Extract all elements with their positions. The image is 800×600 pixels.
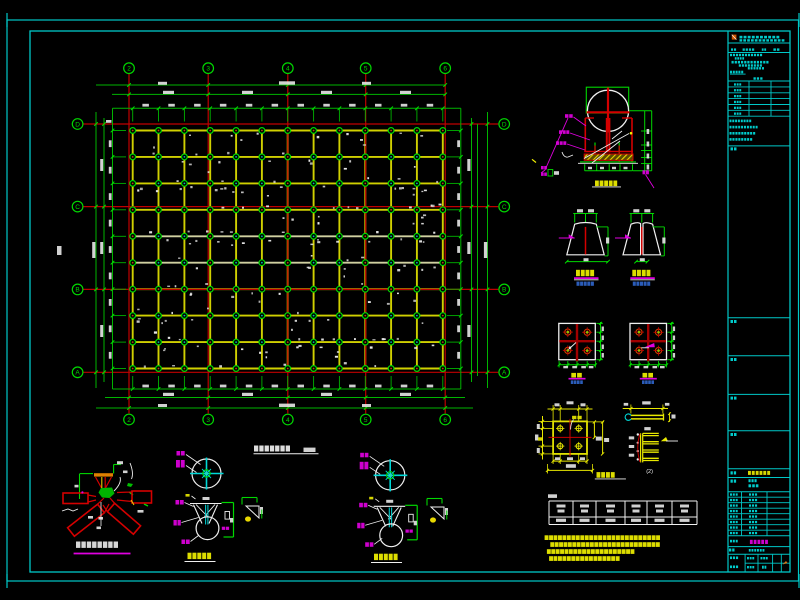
svg-text:C: C — [75, 204, 80, 211]
svg-text:A: A — [502, 370, 507, 377]
svg-text:3: 3 — [206, 417, 210, 424]
svg-text:D: D — [502, 121, 507, 128]
svg-text:B: B — [75, 287, 79, 294]
svg-text:5: 5 — [364, 66, 368, 73]
svg-text:3: 3 — [206, 66, 210, 73]
svg-text:B: B — [502, 287, 506, 294]
svg-text:5: 5 — [364, 417, 368, 424]
svg-text:(2): (2) — [646, 469, 653, 475]
svg-text:D: D — [75, 121, 80, 128]
svg-text:4: 4 — [286, 417, 290, 424]
svg-text:6: 6 — [443, 66, 447, 73]
svg-text:2: 2 — [127, 66, 131, 73]
svg-text:6: 6 — [443, 417, 447, 424]
svg-text:4: 4 — [286, 66, 290, 73]
svg-text:C: C — [502, 204, 507, 211]
svg-text:A: A — [75, 370, 80, 377]
svg-text:2: 2 — [127, 417, 131, 424]
